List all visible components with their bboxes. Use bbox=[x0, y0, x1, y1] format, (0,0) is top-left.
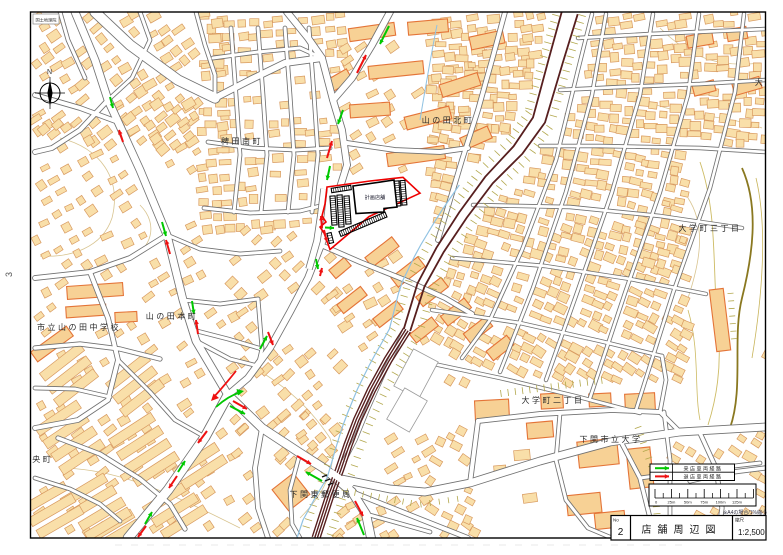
svg-text:計画店舗: 計画店舗 bbox=[365, 193, 386, 201]
svg-text:稗田南町: 稗田南町 bbox=[221, 136, 263, 146]
svg-text:1:2,500: 1:2,500 bbox=[738, 528, 765, 537]
svg-text:大学町二丁目: 大学町二丁目 bbox=[522, 395, 585, 405]
svg-text:退店車両経路: 退店車両経路 bbox=[683, 474, 722, 481]
svg-text:100m: 100m bbox=[716, 500, 727, 505]
svg-text:75m: 75m bbox=[700, 500, 708, 505]
svg-text:下関市立大学: 下関市立大学 bbox=[580, 434, 643, 444]
svg-text:来店車両経路: 来店車両経路 bbox=[683, 465, 722, 472]
svg-text:25m: 25m bbox=[668, 500, 676, 505]
svg-text:2: 2 bbox=[618, 527, 624, 538]
svg-text:山の田北町: 山の田北町 bbox=[422, 115, 475, 125]
svg-text:市立山の田中学校: 市立山の田中学校 bbox=[37, 322, 121, 332]
svg-text:店舗周辺図: 店舗周辺図 bbox=[642, 523, 722, 536]
svg-text:125m: 125m bbox=[732, 500, 743, 505]
svg-text:下関東郵便局: 下関東郵便局 bbox=[290, 489, 353, 499]
svg-text:山の田本町: 山の田本町 bbox=[146, 311, 199, 321]
svg-text:No: No bbox=[613, 518, 619, 523]
svg-text:大学町三丁目: 大学町三丁目 bbox=[679, 223, 742, 233]
svg-text:大: 大 bbox=[755, 77, 766, 87]
svg-text:3: 3 bbox=[4, 272, 14, 277]
svg-text:50m: 50m bbox=[684, 500, 692, 505]
svg-text:国土地理院: 国土地理院 bbox=[36, 17, 58, 24]
svg-text:N: N bbox=[47, 69, 52, 76]
svg-text:縮尺: 縮尺 bbox=[735, 517, 744, 524]
